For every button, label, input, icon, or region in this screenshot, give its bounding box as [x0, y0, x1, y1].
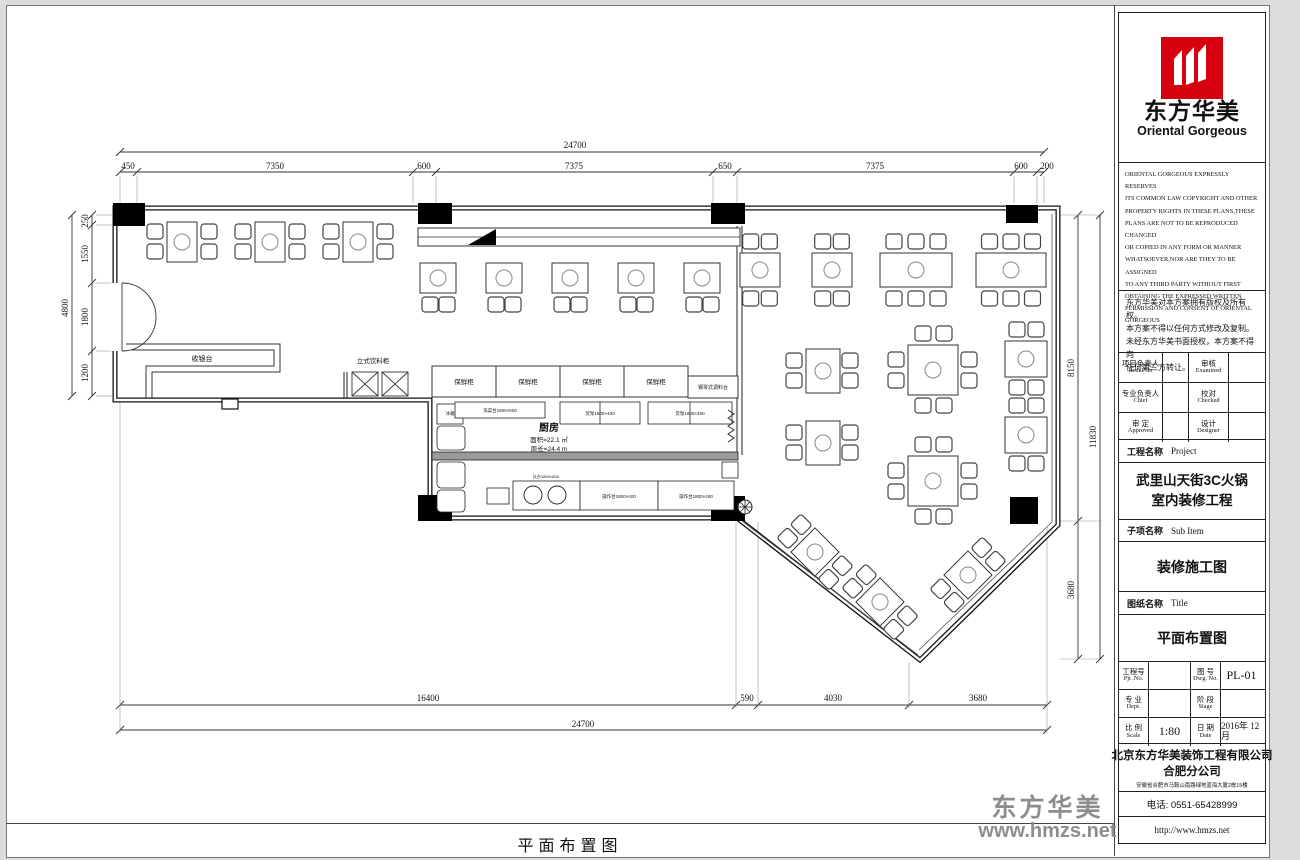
dining-table	[908, 345, 958, 395]
checked-value	[1229, 383, 1262, 412]
kitchen-divider-wall	[432, 452, 738, 460]
svg-text:1200: 1200	[80, 364, 90, 383]
svg-text:450: 450	[121, 161, 135, 171]
dining-table	[880, 253, 952, 287]
svg-text:3680: 3680	[969, 693, 988, 703]
chair	[377, 244, 393, 259]
chair	[201, 224, 217, 239]
copyright-chinese: 东方华美对本方案拥有版权及所有权。本方案不得以任何方式修改及复制。 未经东方华美…	[1119, 291, 1265, 353]
chair	[1025, 234, 1041, 249]
chair	[235, 244, 251, 259]
chair	[930, 578, 952, 600]
chair	[886, 291, 902, 306]
entrance-opening	[110, 283, 122, 351]
chair	[439, 297, 455, 312]
chair	[888, 484, 904, 499]
chair	[761, 234, 777, 249]
chair	[554, 297, 570, 312]
chair	[982, 234, 998, 249]
chair	[1009, 380, 1025, 395]
svg-text:洗菜台1800×600: 洗菜台1800×600	[483, 407, 517, 414]
approval-table: 项目负责人Item.Prin 审核Examined 专业负责人Chief 校对C…	[1119, 353, 1265, 440]
svg-text:保鲜柜: 保鲜柜	[646, 377, 666, 386]
svg-text:冰箱: 冰箱	[446, 410, 455, 417]
stage-value	[1221, 690, 1262, 717]
dining-table	[791, 528, 839, 576]
chair	[786, 425, 802, 440]
logo-english: Oriental Gorgeous	[1137, 124, 1247, 138]
furniture	[147, 222, 1047, 640]
cashier-counter	[126, 344, 280, 398]
chair	[943, 591, 965, 613]
chair	[761, 291, 777, 306]
chair	[289, 224, 305, 239]
meta-table: 工程号Pjt .No. 图 号Dwg. No. PL-01 专 业Dept. 阶…	[1119, 662, 1265, 744]
svg-text:操作台1800×400: 操作台1800×400	[679, 493, 713, 500]
svg-text:650: 650	[718, 161, 732, 171]
chair	[377, 224, 393, 239]
svg-text:7375: 7375	[866, 161, 885, 171]
svg-text:24700: 24700	[572, 719, 595, 729]
chair	[323, 244, 339, 259]
svg-text:8150: 8150	[1066, 359, 1076, 378]
dining-table	[684, 263, 720, 293]
drink-cabinets	[352, 372, 408, 396]
dining-table	[1005, 341, 1047, 377]
watermark-chinese: 东方华美	[965, 796, 1130, 821]
approved-value	[1163, 413, 1189, 442]
dining-table	[167, 222, 197, 262]
company-section: 北京东方华美装饰工程有限公司 合肥分公司 安徽省合肥市马鞍山南路绿地蓝海大厦2栋…	[1119, 744, 1265, 792]
svg-text:4030: 4030	[824, 693, 843, 703]
svg-text:11830: 11830	[1088, 425, 1098, 448]
dining-table	[740, 253, 780, 287]
title-block: 东方华美 Oriental Gorgeous ORIENTAL GORGEOUS…	[1118, 12, 1266, 844]
designer-value	[1229, 413, 1262, 442]
chair	[743, 291, 759, 306]
examined-value	[1229, 353, 1262, 382]
chair	[1025, 291, 1041, 306]
chair	[637, 297, 653, 312]
dining-table	[486, 263, 522, 293]
chair	[1028, 456, 1044, 471]
subitem-label-row: 子项名称 Sub Item	[1119, 520, 1265, 542]
diagonal-table-group	[930, 537, 1006, 613]
project-label-row: 工程名称 Project	[1119, 440, 1265, 463]
svg-text:590: 590	[740, 693, 754, 703]
svg-text:600: 600	[417, 161, 431, 171]
dining-table	[806, 421, 840, 465]
chair	[488, 297, 504, 312]
chair	[201, 244, 217, 259]
svg-text:3680: 3680	[1066, 581, 1076, 600]
logo-section: 东方华美 Oriental Gorgeous	[1119, 13, 1265, 163]
svg-text:保鲜柜: 保鲜柜	[582, 377, 602, 386]
svg-text:4800: 4800	[60, 299, 70, 318]
chair	[1003, 234, 1019, 249]
svg-text:200: 200	[1040, 161, 1054, 171]
project-name: 武里山天街3C火锅 室内装修工程	[1119, 463, 1265, 520]
chair	[1028, 398, 1044, 413]
chair	[961, 352, 977, 367]
chair	[908, 291, 924, 306]
chair	[777, 527, 799, 549]
chair	[855, 564, 877, 586]
chair	[1009, 398, 1025, 413]
chair	[147, 224, 163, 239]
dept-value	[1149, 690, 1191, 717]
chair	[930, 291, 946, 306]
svg-text:操作台1800×400: 操作台1800×400	[602, 493, 636, 500]
chair	[422, 297, 438, 312]
chair	[961, 463, 977, 478]
svg-text:7375: 7375	[565, 161, 584, 171]
booth-bench	[418, 228, 740, 246]
chair	[896, 605, 918, 627]
chair	[235, 224, 251, 239]
subitem-name: 装修施工图	[1119, 542, 1265, 592]
titleblock-divider-line	[1114, 5, 1115, 856]
dining-table	[812, 253, 852, 287]
entrance-door	[122, 283, 156, 351]
chair	[1009, 456, 1025, 471]
chair	[323, 224, 339, 239]
chair	[1028, 380, 1044, 395]
chair	[961, 484, 977, 499]
chair	[818, 568, 840, 590]
chair	[842, 373, 858, 388]
svg-text:保鲜柜: 保鲜柜	[454, 377, 474, 386]
company-logo-icon	[1161, 37, 1223, 99]
svg-text:周长=24.4 m: 周长=24.4 m	[531, 444, 568, 453]
chair	[936, 398, 952, 413]
chair	[815, 291, 831, 306]
drawing-number-value: PL-01	[1221, 662, 1262, 689]
chair	[908, 234, 924, 249]
phone-row: 电话: 0551-65428999	[1119, 792, 1265, 817]
dining-table	[343, 222, 373, 262]
date-value: 2016年 12月	[1221, 718, 1262, 746]
chair	[571, 297, 587, 312]
company-address: 安徽省合肥市马鞍山南路绿地蓝海大厦2栋15楼	[1136, 781, 1247, 789]
chair	[833, 291, 849, 306]
chair	[1028, 322, 1044, 337]
watermark: 东方华美 www.hmzs.net	[965, 796, 1130, 841]
chair	[915, 398, 931, 413]
drink-cabinet-label: 立式饮料柜	[357, 356, 390, 365]
sheet-name: 平面布置图	[1119, 615, 1265, 662]
chair	[831, 555, 853, 577]
chair	[888, 352, 904, 367]
chair	[786, 445, 802, 460]
chair	[790, 514, 812, 536]
chair	[833, 234, 849, 249]
svg-text:保鲜柜: 保鲜柜	[518, 377, 538, 386]
svg-text:面积=22.1 ㎡: 面积=22.1 ㎡	[530, 435, 568, 444]
copyright-english: ORIENTAL GORGEOUS EXPRESSLY RESERVESITS …	[1119, 163, 1265, 291]
chair	[883, 618, 905, 640]
chair	[786, 353, 802, 368]
chair	[703, 297, 719, 312]
dining-table	[255, 222, 285, 262]
scale-value: 1:80	[1149, 718, 1191, 746]
item-prin-value	[1163, 353, 1189, 382]
floor-plan-svg: 24700 450 7350 600 7375 650 7375 600 200…	[0, 0, 1114, 860]
chair	[289, 244, 305, 259]
svg-text:16400: 16400	[417, 693, 440, 703]
chair	[786, 373, 802, 388]
fan-symbol	[738, 500, 752, 514]
cashier-label: 收银台	[192, 354, 213, 363]
chair	[842, 353, 858, 368]
chair	[505, 297, 521, 312]
chair	[915, 437, 931, 452]
chair	[936, 326, 952, 341]
chair	[915, 326, 931, 341]
dim-top-total: 24700	[564, 140, 587, 150]
chair	[888, 463, 904, 478]
chair	[1003, 291, 1019, 306]
dining-table	[552, 263, 588, 293]
website-row: http://www.hmzs.net	[1119, 817, 1265, 843]
svg-text:灶台1800×800: 灶台1800×800	[533, 473, 560, 479]
dining-table	[1005, 417, 1047, 453]
project-number-value	[1149, 662, 1191, 689]
chair	[915, 509, 931, 524]
sheet-label-row: 图纸名称 Title	[1119, 592, 1265, 615]
chair	[1009, 322, 1025, 337]
chair	[982, 291, 998, 306]
chair	[620, 297, 636, 312]
chair	[886, 234, 902, 249]
chair	[743, 234, 759, 249]
chair	[842, 577, 864, 599]
chair	[686, 297, 702, 312]
kitchen-label: 厨房	[539, 421, 559, 434]
chair	[930, 234, 946, 249]
dining-table	[420, 263, 456, 293]
drawing-sheet: 24700 450 7350 600 7375 650 7375 600 200…	[0, 0, 1300, 860]
chair	[147, 244, 163, 259]
chair	[936, 437, 952, 452]
dining-table	[618, 263, 654, 293]
chair	[971, 537, 993, 559]
chair	[842, 425, 858, 440]
chair	[842, 445, 858, 460]
chair	[815, 234, 831, 249]
svg-text:600: 600	[1014, 161, 1028, 171]
condiment-label: 钢琴式调料台	[698, 384, 728, 391]
chief-value	[1163, 383, 1189, 412]
dining-table	[976, 253, 1046, 287]
dining-table	[944, 551, 992, 599]
svg-text:货架1800×400: 货架1800×400	[585, 410, 615, 417]
svg-text:货架1800×400: 货架1800×400	[675, 410, 705, 417]
watermark-site: www.hmzs.net	[965, 821, 1130, 841]
svg-text:1800: 1800	[80, 308, 90, 327]
svg-text:1550: 1550	[80, 245, 90, 264]
dining-table	[908, 456, 958, 506]
logo-chinese: 东方华美	[1144, 99, 1240, 123]
svg-text:7350: 7350	[266, 161, 285, 171]
dining-table	[806, 349, 840, 393]
svg-text:250: 250	[80, 214, 90, 228]
chair	[888, 373, 904, 388]
chair	[961, 373, 977, 388]
chair	[936, 509, 952, 524]
